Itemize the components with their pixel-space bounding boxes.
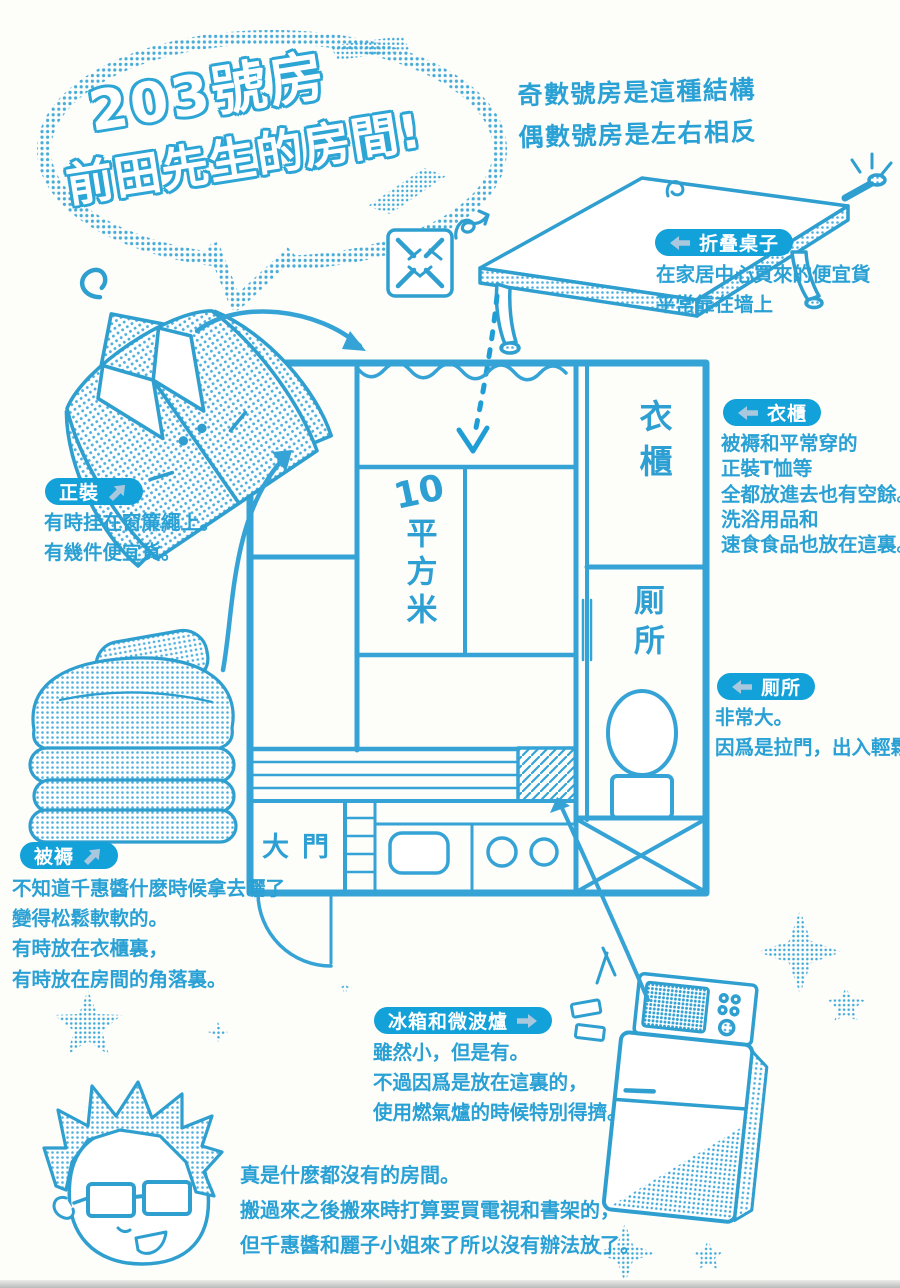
floor-plan-entrance-label: 大門 (262, 825, 342, 864)
label-toilet-text: 厠所 (761, 673, 801, 700)
note-futon: 不知道千惠醬什麽時候拿去曬了 變得松鬆軟軟的。 有時放在衣櫃裏， 有時放在房間的… (12, 874, 285, 995)
folded-table-diagram (388, 230, 452, 296)
floor-plan-closet-label: 衣櫃 (629, 399, 677, 489)
room-structure-note-line2: 偶數號房是左右相反 (518, 111, 758, 159)
arrow-up-right-icon (107, 484, 129, 500)
futon-illustration (30, 627, 236, 842)
note-toilet: 非常大。 因爲是拉門，出入輕鬆。 (715, 703, 900, 763)
label-folding-table-text: 折叠桌子 (699, 229, 779, 256)
floor-plan-area-unit: 平方米 (397, 517, 442, 631)
label-toilet: 厠所 (717, 673, 815, 700)
label-fridge-microwave-text: 冰箱和微波爐 (388, 1007, 508, 1034)
manga-floorplan-page: 203號房 前田先生的房間! 奇數號房是這種結構 偶數號房是左右相反 折叠桌子 … (0, 0, 900, 1288)
arrow-up-right-icon (82, 848, 104, 864)
label-fridge-microwave: 冰箱和微波爐 (374, 1007, 552, 1034)
note-folding-table: 在家居中心買來的便宜貨 平常靠在墙上 (656, 260, 871, 320)
note-suit: 有時挂在窗簾繩上。 有幾件便宜貨。 (44, 508, 220, 568)
note-fridge-microwave: 雖然小，但是有。 不過因爲是放在這裏的， 使用燃氣爐的時候特別得擠。 (373, 1038, 627, 1129)
label-closet: 衣櫃 (723, 399, 821, 426)
label-suit-text: 正裝 (59, 478, 99, 505)
scan-edge (0, 1280, 900, 1288)
floor-plan-area-value: 10 (390, 467, 448, 518)
arrow-left-icon (731, 679, 753, 695)
character-head-illustration (44, 1082, 222, 1264)
label-closet-text: 衣櫃 (767, 399, 807, 426)
arrow-right-icon (516, 1013, 538, 1029)
label-futon: 被褥 (20, 842, 118, 869)
label-folding-table: 折叠桌子 (655, 229, 793, 256)
note-closet: 被褥和平常穿的 正裝T恤等 全都放進去也有空餘。 洗浴用品和 速食食品也放在這裏… (721, 431, 900, 558)
arrow-left-icon (737, 405, 759, 421)
room-structure-note: 奇數號房是這種結構 偶數號房是左右相反 (517, 69, 758, 159)
room-structure-note-line1: 奇數號房是這種結構 (517, 69, 757, 117)
arrow-left-icon (669, 235, 691, 251)
label-futon-text: 被褥 (34, 842, 74, 869)
floor-plan-toilet-label: 厠所 (624, 584, 669, 664)
floor-plan-area-label: 10 平方米 (396, 472, 442, 631)
label-suit: 正裝 (45, 478, 143, 505)
footer-note: 真是什麽都沒有的房間。 搬過來之後搬來時打算要買電視和書架的， 但千惠醬和麗子小… (240, 1158, 640, 1263)
